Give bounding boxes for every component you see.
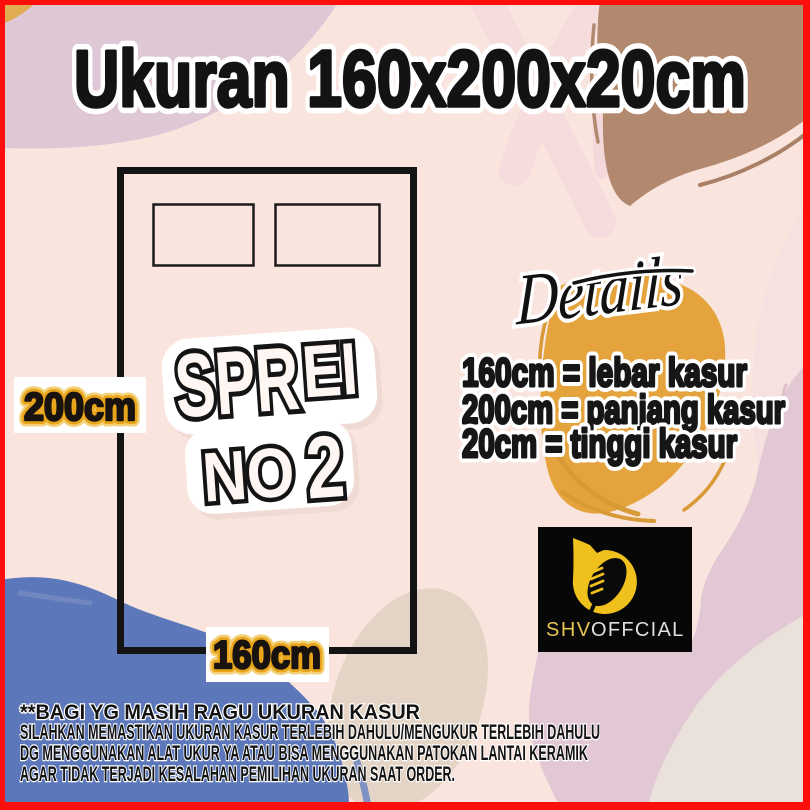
svg-text:2: 2 bbox=[303, 416, 348, 517]
svg-text:AGAR TIDAK TERJADI KESALAHAN P: AGAR TIDAK TERJADI KESALAHAN PEMILIHAN U… bbox=[20, 763, 455, 786]
svg-text:SILAHKAN MEMASTIKAN UKURAN KAS: SILAHKAN MEMASTIKAN UKURAN KASUR TERLEBI… bbox=[20, 721, 600, 744]
svg-text:EI: EI bbox=[299, 327, 360, 414]
svg-text:20cm = tinggi kasur: 20cm = tinggi kasur bbox=[462, 422, 737, 466]
svg-text:200cm: 200cm bbox=[24, 386, 136, 429]
svg-text:Ukuran 160x200x20cm: Ukuran 160x200x20cm bbox=[74, 34, 746, 123]
svg-text:SHV: SHV bbox=[546, 619, 592, 641]
svg-text:NO: NO bbox=[200, 432, 297, 516]
svg-text:OFFCIAL: OFFCIAL bbox=[591, 619, 685, 641]
svg-text:160cm: 160cm bbox=[213, 634, 321, 677]
svg-text:SPR: SPR bbox=[172, 329, 303, 437]
svg-text:DG MENGGUNAKAN ALAT UKUR YA AT: DG MENGGUNAKAN ALAT UKUR YA ATAU BISA ME… bbox=[20, 742, 588, 765]
